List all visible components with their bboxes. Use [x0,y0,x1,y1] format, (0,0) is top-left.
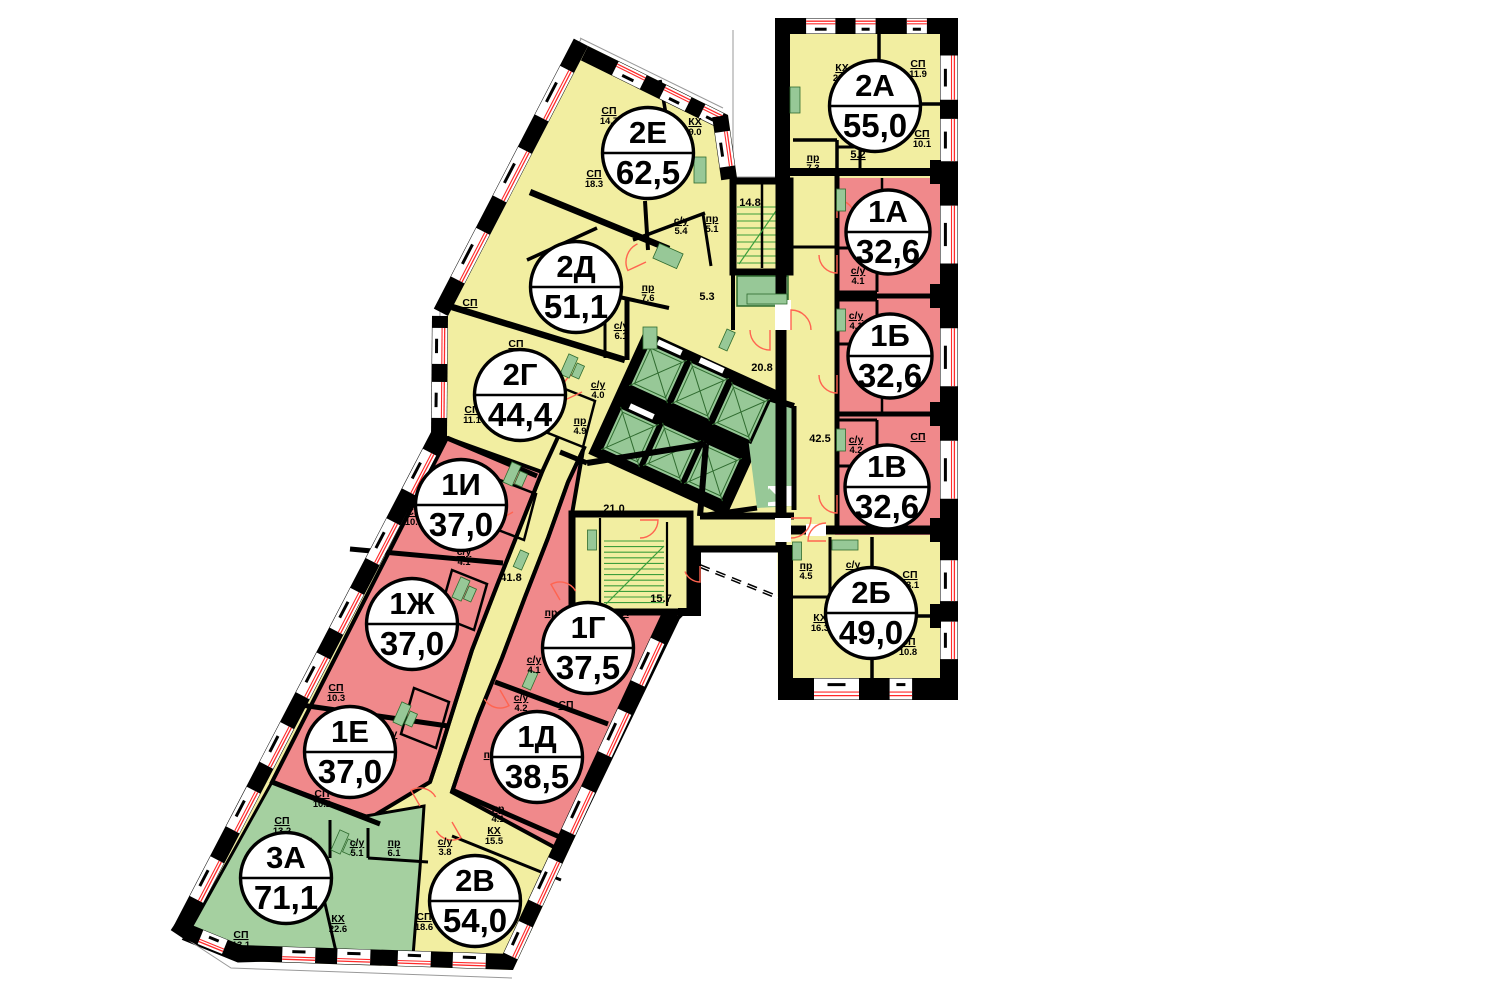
svg-text:СП: СП [910,431,925,443]
svg-text:1В: 1В [867,449,907,484]
svg-text:55,0: 55,0 [843,107,907,144]
svg-text:18.3: 18.3 [585,179,603,190]
svg-text:2Д: 2Д [556,249,595,284]
svg-text:22.6: 22.6 [329,924,347,935]
svg-text:7.3: 7.3 [806,163,819,174]
svg-text:4.1: 4.1 [527,665,540,676]
svg-text:21.0: 21.0 [603,503,624,515]
svg-text:4.1: 4.1 [491,814,504,825]
svg-text:20.8: 20.8 [751,362,772,374]
svg-text:71,1: 71,1 [254,879,318,916]
svg-text:15.7: 15.7 [650,593,671,605]
svg-text:18.6: 18.6 [415,922,433,933]
svg-text:2А: 2А [855,68,895,103]
svg-text:2В: 2В [455,863,495,898]
svg-text:СП: СП [462,297,477,309]
svg-text:5.1: 5.1 [350,848,363,859]
svg-text:37,0: 37,0 [429,506,493,543]
svg-text:1А: 1А [868,194,908,229]
svg-text:62,5: 62,5 [616,154,680,191]
svg-text:44,4: 44,4 [488,396,553,433]
svg-text:1Б: 1Б [870,318,910,353]
svg-text:1Е: 1Е [331,714,369,749]
svg-text:32,6: 32,6 [856,233,920,270]
svg-text:4.1: 4.1 [457,557,470,568]
svg-text:51,1: 51,1 [544,288,608,325]
svg-text:4.1: 4.1 [851,276,864,287]
svg-text:15.5: 15.5 [485,836,503,847]
svg-text:5.4: 5.4 [674,226,688,237]
svg-text:38,5: 38,5 [505,758,569,795]
svg-text:2Е: 2Е [629,115,667,150]
svg-text:13.1: 13.1 [232,940,250,951]
svg-text:41.8: 41.8 [500,572,521,584]
svg-text:32,6: 32,6 [858,357,922,394]
svg-text:37,0: 37,0 [380,625,444,662]
svg-text:1Ж: 1Ж [389,586,435,621]
svg-text:3А: 3А [266,840,306,875]
svg-text:2Б: 2Б [851,575,891,610]
svg-text:7.6: 7.6 [641,293,654,304]
svg-text:4.5: 4.5 [799,571,812,582]
svg-text:37,0: 37,0 [318,753,382,790]
svg-text:5.1: 5.1 [705,224,718,235]
svg-text:1И: 1И [441,467,481,502]
svg-text:4.9: 4.9 [573,426,586,437]
svg-text:32,6: 32,6 [855,488,919,525]
svg-text:49,0: 49,0 [839,614,903,651]
svg-text:10.2: 10.2 [313,799,331,810]
svg-text:СП: СП [558,699,573,711]
svg-text:6.1: 6.1 [387,848,400,859]
svg-text:54,0: 54,0 [443,902,507,939]
svg-text:1Д: 1Д [517,719,556,754]
svg-text:10.3: 10.3 [327,693,345,704]
svg-text:3.8: 3.8 [438,847,451,858]
svg-text:1Г: 1Г [571,610,606,645]
svg-text:4.0: 4.0 [591,390,604,401]
svg-text:6.1: 6.1 [614,331,627,342]
svg-text:37,5: 37,5 [556,649,620,686]
svg-text:10.1: 10.1 [913,139,931,150]
svg-text:5.3: 5.3 [699,291,714,303]
svg-text:14.8: 14.8 [739,197,760,209]
svg-text:42.5: 42.5 [809,433,830,445]
svg-text:2Г: 2Г [503,357,538,392]
